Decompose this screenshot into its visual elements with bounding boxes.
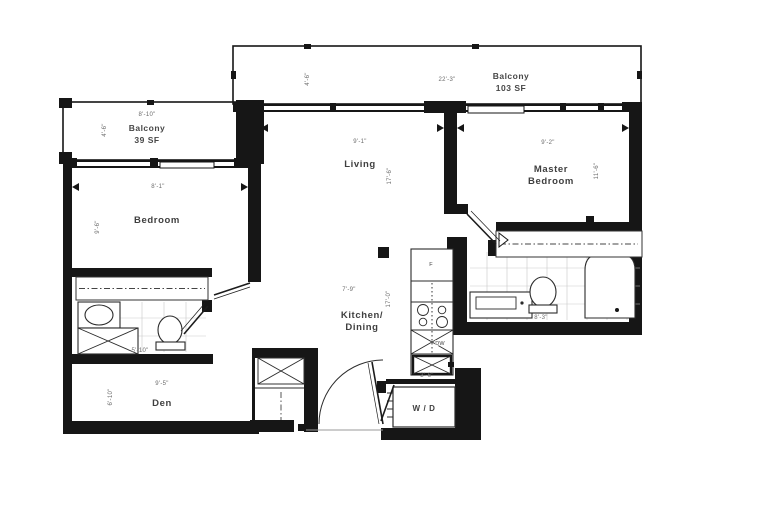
room-label-den: Den: [152, 398, 172, 409]
balcony-top: [231, 44, 642, 104]
sink-icon: [85, 305, 113, 325]
toilet-icon: [530, 277, 556, 307]
dim-den-depth: 6'-10": [108, 388, 114, 405]
bathroom: [78, 302, 208, 354]
balcony-sliding-door: [468, 106, 524, 113]
vanity-sink-icon: [470, 292, 532, 318]
bedroom-door: [214, 283, 250, 299]
kitchen-appliances: F DW: [411, 249, 454, 375]
dim-master-bath-width: 8'-3": [534, 315, 547, 321]
entry-closet: [255, 358, 304, 420]
dim-balcony-left-width: 8'-10": [138, 112, 155, 118]
dim-living-width: 9'-1": [353, 139, 366, 145]
floor-plan: F DW: [0, 0, 760, 505]
room-label-laundry: W / D: [413, 404, 436, 413]
dim-kitchen-depth: 17'-0": [386, 290, 392, 307]
area-label-balcony-top: 103 SF: [496, 83, 526, 93]
bath-door-leaf: [184, 306, 208, 334]
master-bathroom: [470, 252, 640, 320]
dim-balcony-top-width: 22'-3": [438, 77, 455, 83]
room-label-master-bedroom-1: Master: [534, 164, 568, 175]
bedroom-closet: [76, 277, 208, 300]
floor-plan-drawing: F DW: [0, 0, 760, 505]
column: [378, 247, 389, 258]
dim-balcony-top-depth: 4'-6": [305, 72, 311, 85]
tub-drain: [615, 308, 619, 312]
master-closet: [496, 231, 642, 257]
svg-text:DW: DW: [435, 341, 445, 347]
dim-master-depth: 11'-6": [594, 163, 600, 180]
room-label-kitchen-1: Kitchen/: [341, 310, 383, 321]
room-label-living: Living: [344, 159, 376, 170]
dim-kitchen-width: 7'-9": [342, 287, 355, 293]
dim-balcony-left-depth: 4'-6": [102, 123, 108, 136]
walls: [63, 100, 642, 440]
room-label-master-bedroom-2: Bedroom: [528, 176, 574, 187]
toilet-icon: [158, 316, 182, 344]
room-label-kitchen-2: Dining: [345, 322, 378, 333]
room-label-balcony-top: Balcony: [493, 71, 530, 81]
master-bedroom-door: [467, 211, 500, 244]
dim-laundry-width: 3'-6": [420, 373, 433, 379]
dim-bedroom-width: 8'-1": [151, 184, 164, 190]
dim-bedroom-depth: 9'-6": [95, 220, 101, 233]
dim-master-width: 9'-2": [541, 140, 554, 146]
fridge-icon: F: [429, 262, 433, 268]
dim-den-width: 9'-5": [155, 381, 168, 387]
dim-living-depth: 17'-6": [387, 167, 393, 184]
room-label-balcony-left: Balcony: [129, 123, 166, 133]
bathtub-icon: [585, 254, 635, 318]
bedroom-sliding-door: [160, 162, 214, 168]
kitchen-sink-icon: [413, 356, 454, 374]
area-label-balcony-left: 39 SF: [134, 135, 159, 145]
dim-bath-width: 5'-10": [131, 348, 148, 354]
room-label-bedroom: Bedroom: [134, 215, 180, 226]
